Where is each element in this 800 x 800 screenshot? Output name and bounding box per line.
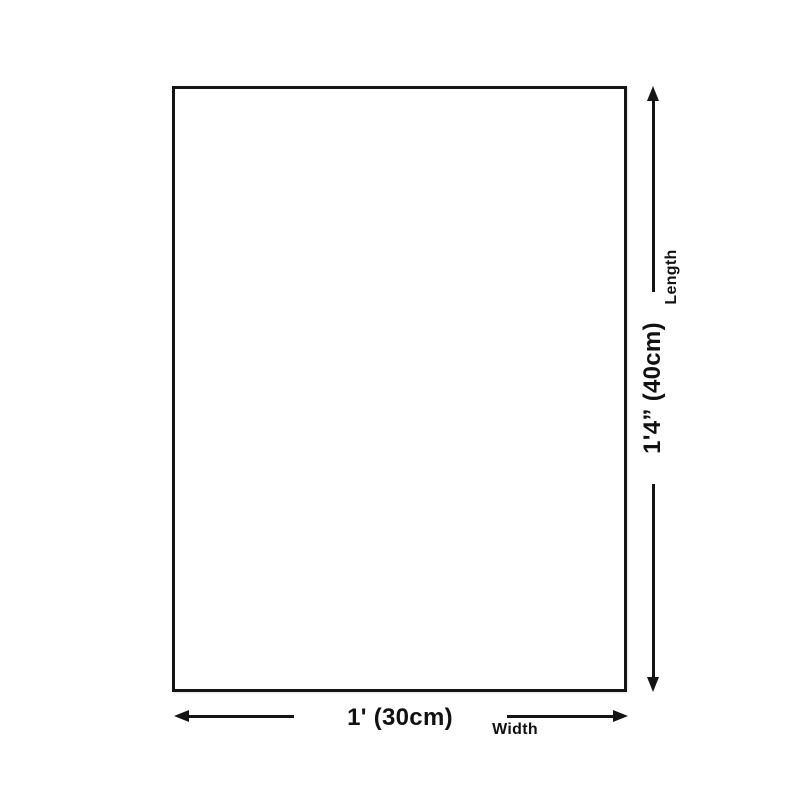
product-size-diagram: 1'4” (40cm) Length 1' (30cm) Width <box>0 0 800 800</box>
width-dimension-line-left <box>187 715 294 718</box>
width-value: 1' (30cm) <box>347 704 453 732</box>
length-value: 1'4” (40cm) <box>639 322 667 454</box>
width-label: Width <box>492 721 538 739</box>
arrow-down-icon <box>647 677 659 692</box>
length-dimension-line-lower <box>652 484 655 678</box>
length-label: Length <box>663 249 681 304</box>
arrow-up-icon <box>647 86 659 101</box>
width-dimension-line-right <box>507 715 614 718</box>
arrow-right-icon <box>613 710 628 722</box>
product-outline-rect <box>172 86 627 692</box>
length-dimension-line-upper <box>652 100 655 292</box>
